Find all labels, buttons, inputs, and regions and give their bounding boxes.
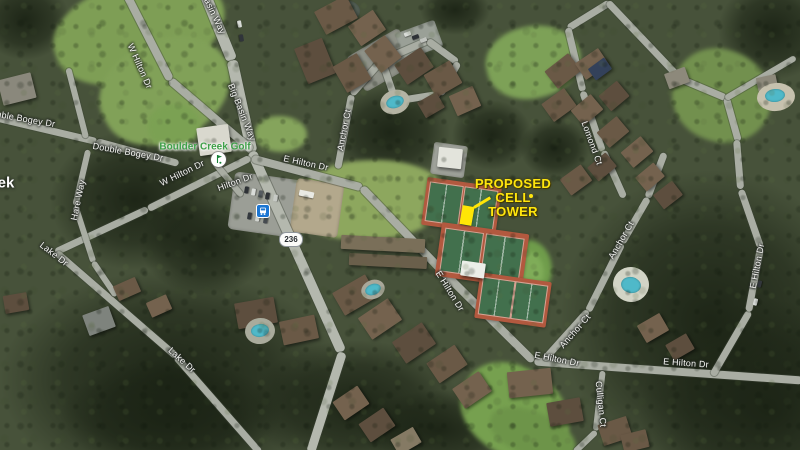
bus-glyph: [259, 207, 267, 215]
building: [3, 292, 30, 314]
building: [0, 72, 37, 105]
vehicle: [239, 34, 244, 42]
annotation-line-1: PROPOSED: [474, 177, 552, 191]
golf-flag-glyph: [213, 154, 224, 165]
tennis-court-surface: [426, 183, 463, 225]
canopy-tent: [460, 260, 486, 278]
building: [349, 253, 428, 269]
building: [294, 38, 336, 84]
terrain-layer: [0, 0, 800, 450]
building: [437, 147, 463, 169]
road: [566, 0, 612, 31]
place-label-fragment: ek: [0, 175, 14, 192]
annotation-line-2: CELL: [474, 191, 552, 205]
grass-clearing: [255, 116, 307, 152]
golf-flag-icon[interactable]: [211, 152, 226, 167]
annotation-line-3: TOWER: [474, 205, 552, 219]
paved-area: [289, 178, 344, 238]
road: [426, 37, 460, 65]
building: [546, 397, 584, 427]
tennis-court: [474, 272, 552, 328]
bus-transit-icon[interactable]: [256, 204, 270, 218]
building: [598, 81, 629, 112]
proposed-cell-tower-annotation: PROPOSED CELL TOWER: [474, 177, 552, 219]
poi-label-boulder-creek-golf[interactable]: Boulder Creek Golf: [159, 142, 250, 153]
building: [341, 235, 426, 253]
tennis-court-surface: [479, 278, 515, 318]
satellite-map[interactable]: W Hilton DrBig Basin WayBig Basin WayDou…: [0, 0, 800, 450]
building: [507, 368, 553, 398]
road: [572, 429, 598, 450]
vehicle: [237, 20, 242, 28]
road: [605, 0, 683, 81]
building: [621, 136, 654, 168]
tennis-court-surface: [511, 282, 547, 322]
route-shield-236: 236: [279, 232, 303, 247]
